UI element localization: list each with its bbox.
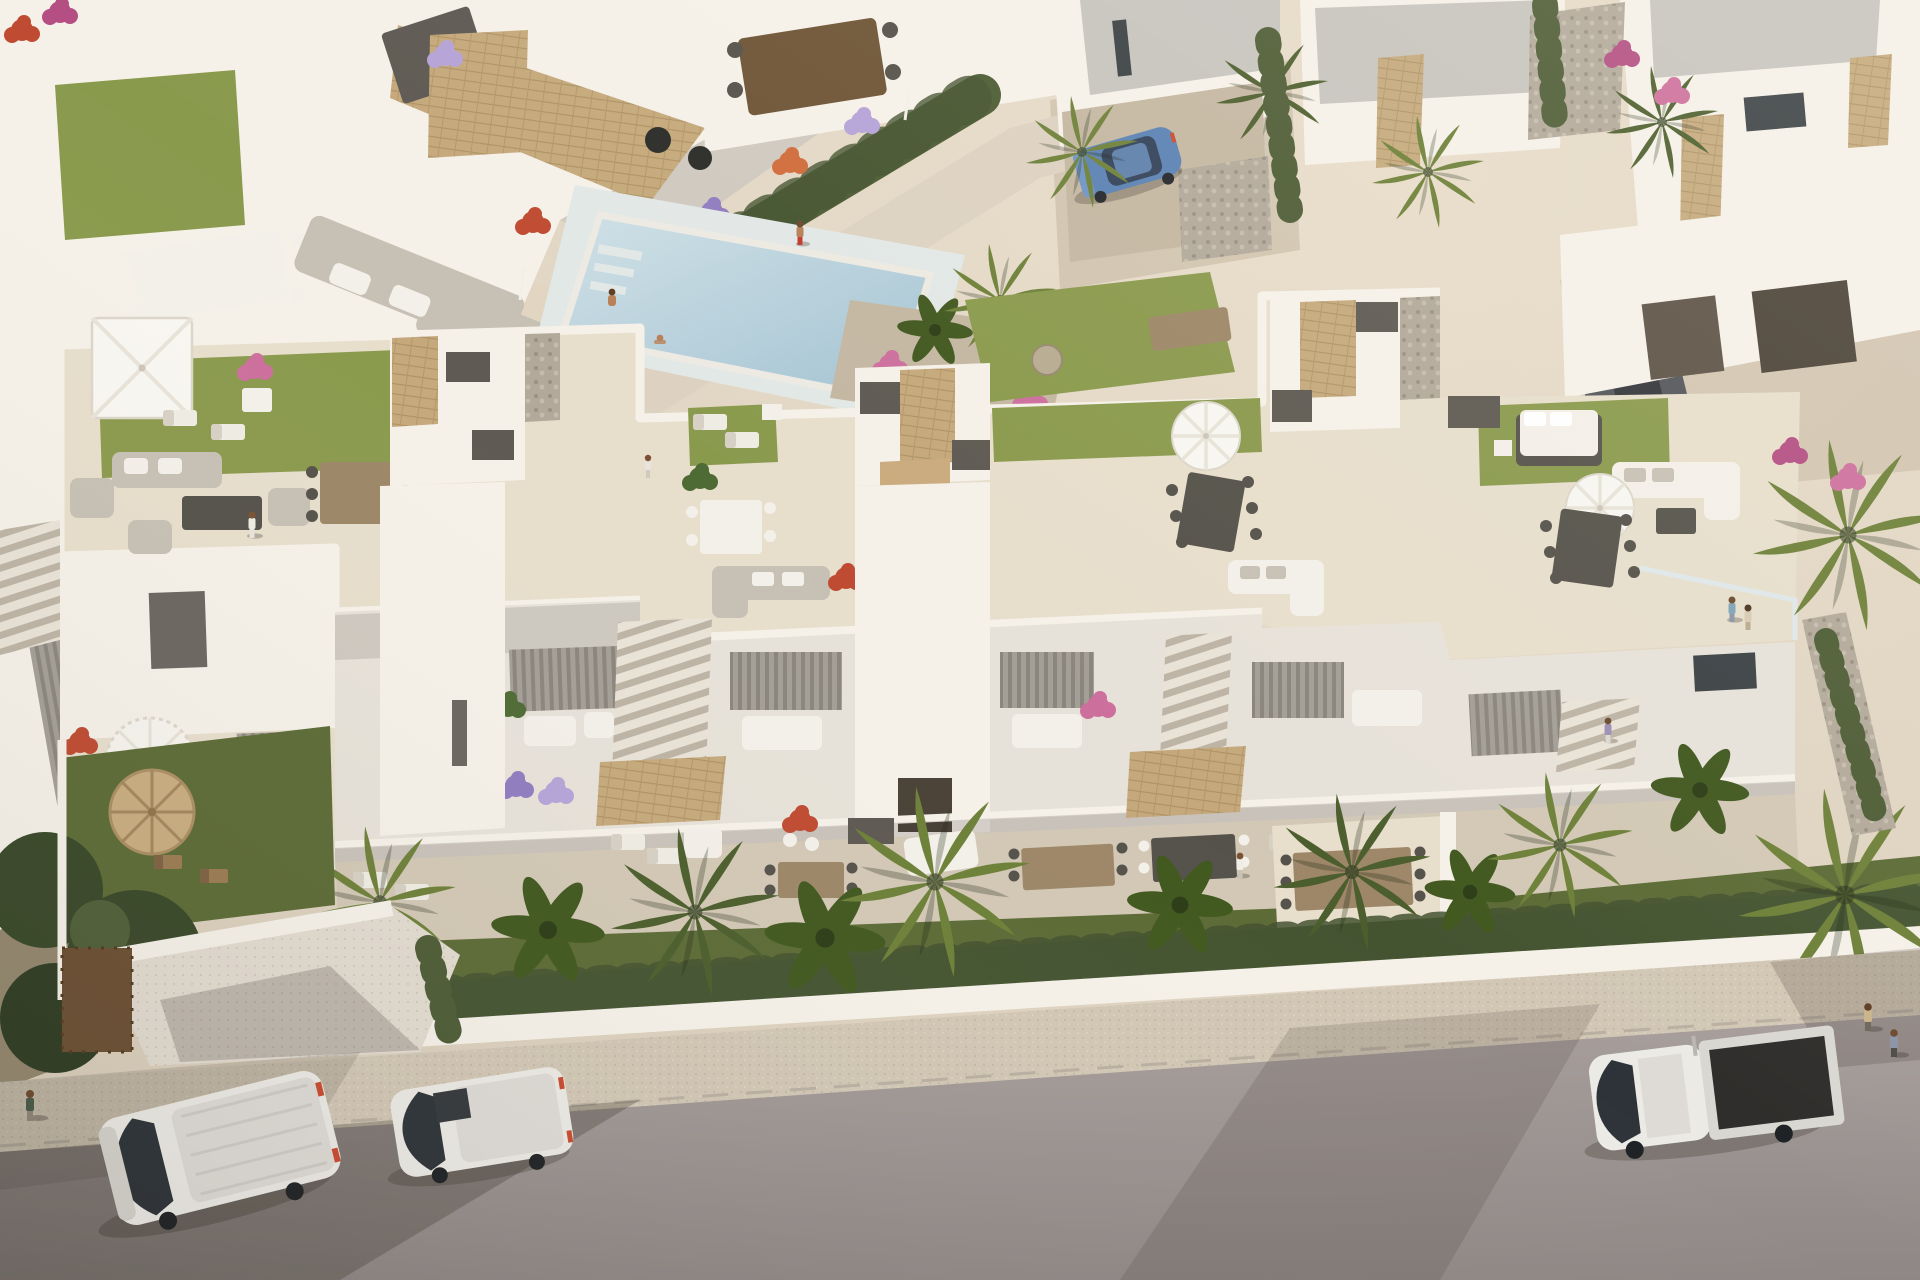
aerial-render-viewport: Golden-hour aerial 3D rendering of a mod… xyxy=(0,0,1920,1280)
light-overlay xyxy=(0,0,1920,1280)
aerial-render xyxy=(0,0,1920,1280)
